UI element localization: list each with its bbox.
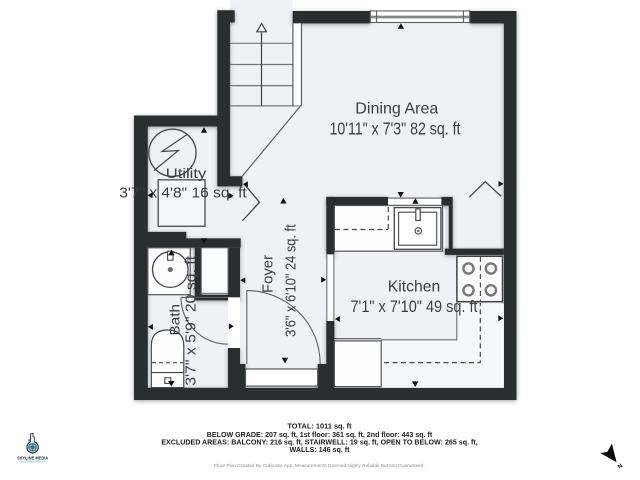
svg-text:REAL ESTATE MEDIA PRODUCTION: REAL ESTATE MEDIA PRODUCTION (21, 461, 46, 464)
svg-text:Foyer: Foyer (261, 255, 277, 293)
svg-text:Dining Area: Dining Area (355, 100, 438, 117)
svg-text:Kitchen: Kitchen (388, 279, 441, 296)
svg-text:Utility: Utility (166, 166, 207, 181)
svg-text:SKYLINE MEDIA: SKYLINE MEDIA (17, 455, 49, 460)
svg-text:7'1" x 7'10" 49 sq. ft: 7'1" x 7'10" 49 sq. ft (351, 297, 478, 316)
svg-text:Bath: Bath (166, 304, 182, 336)
svg-text:Floor Plan Created By Cubicasa: Floor Plan Created By Cubicasa App. Meas… (214, 463, 425, 469)
svg-text:3'7" x 4'8" 16 sq. ft: 3'7" x 4'8" 16 sq. ft (119, 186, 247, 202)
svg-text:10'11" x 7'3" 82 sq. ft: 10'11" x 7'3" 82 sq. ft (330, 119, 461, 139)
svg-text:WALLS: 146 sq. ft: WALLS: 146 sq. ft (290, 446, 351, 454)
svg-text:3'7" x 5'9" 20 sq. ft: 3'7" x 5'9" 20 sq. ft (183, 256, 199, 386)
svg-text:3'6" x 6'10" 24 sq. ft: 3'6" x 6'10" 24 sq. ft (283, 224, 299, 337)
svg-text:TOTAL: 1011 sq. ft: TOTAL: 1011 sq. ft (287, 421, 352, 430)
